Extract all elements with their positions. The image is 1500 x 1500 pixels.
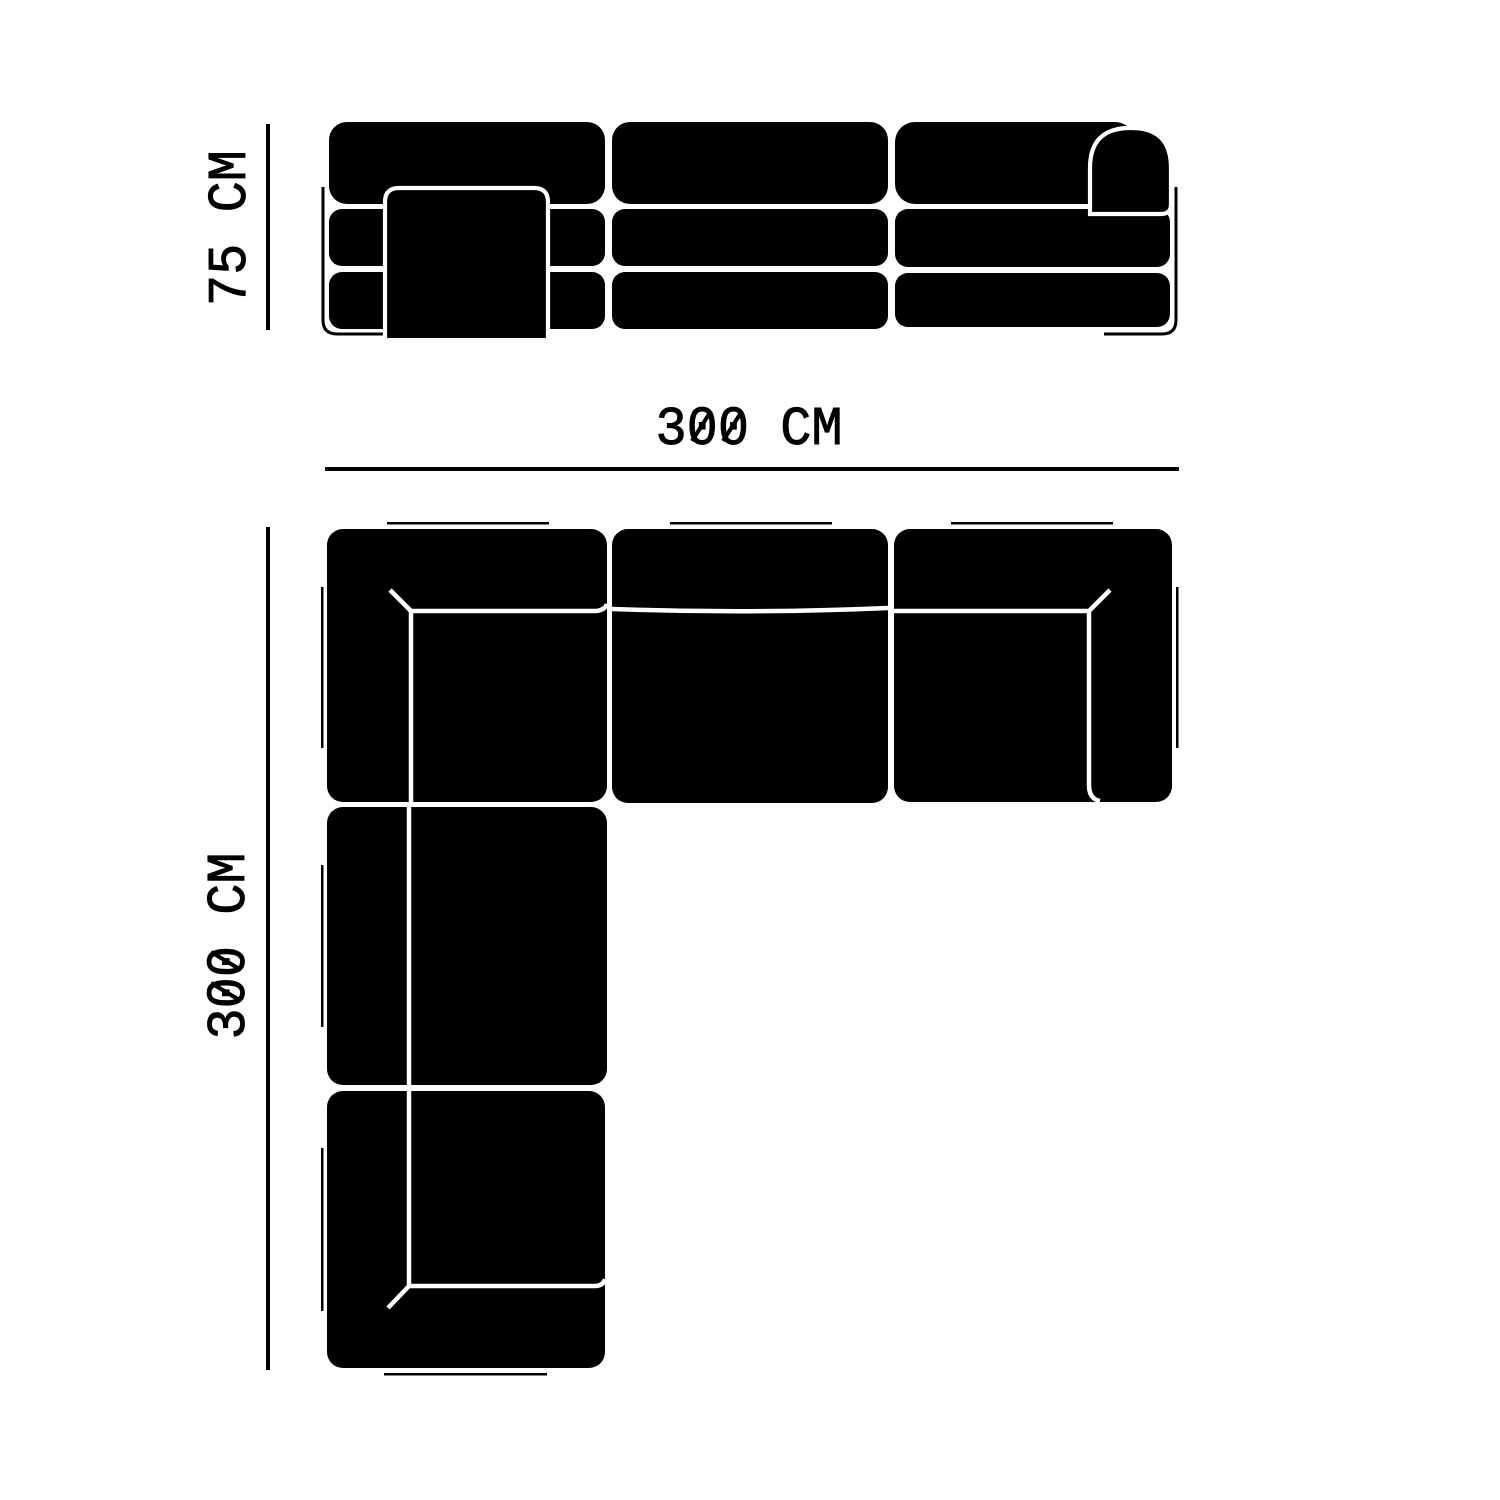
svg-text:300 CM: 300 CM: [199, 852, 262, 1039]
svg-text:75 CM: 75 CM: [200, 150, 263, 306]
svg-text:300 CM: 300 CM: [655, 399, 842, 462]
